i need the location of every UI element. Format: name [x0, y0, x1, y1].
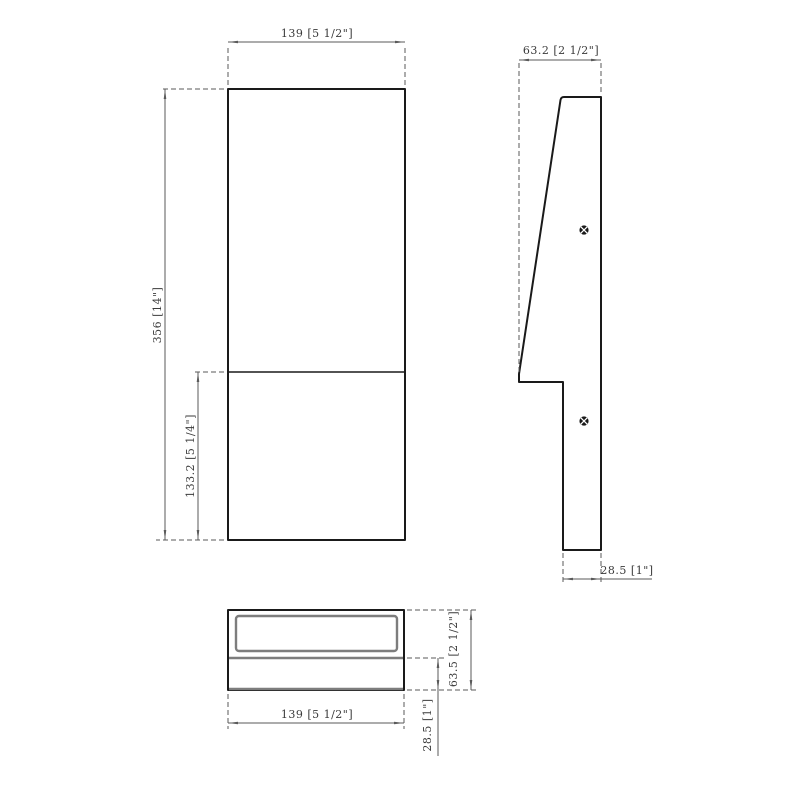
front-width-dimension: 139 [5 1/2"]: [228, 27, 405, 85]
side-depth-dim-label: 63.2 [2 1/2"]: [523, 44, 599, 57]
side-base-depth-dim-label: 28.5 [1"]: [600, 564, 653, 577]
side-base-depth-dimension: 28.5 [1"]: [563, 553, 654, 583]
screw-icon: [579, 416, 588, 425]
drawing-sheet: 139 [5 1/2"] 356 [14"] 133.2 [5 1/4"]: [0, 0, 800, 800]
bottom-width-dimension: 139 [5 1/2"]: [228, 694, 404, 729]
front-height-dim-label: 356 [14"]: [151, 287, 164, 344]
bottom-base-depth-dimension: 28.5 [1"]: [407, 658, 445, 756]
screw-icon: [579, 225, 588, 234]
bottom-base-depth-dim-label: 28.5 [1"]: [421, 698, 434, 751]
front-lower-height-dim-label: 133.2 [5 1/4"]: [184, 414, 197, 498]
side-view-outline: [519, 97, 601, 550]
side-view: 63.2 [2 1/2"] 28.5 [1"]: [519, 44, 654, 583]
side-depth-dimension: 63.2 [2 1/2"]: [519, 44, 601, 372]
bottom-view: 139 [5 1/2"] 63.5 [2 1/2"] 28.5 [1"]: [228, 610, 477, 756]
bottom-depth-dim-label: 63.5 [2 1/2"]: [447, 611, 460, 687]
bottom-depth-dimension: 63.5 [2 1/2"]: [407, 610, 477, 690]
technical-drawing-canvas: 139 [5 1/2"] 356 [14"] 133.2 [5 1/4"]: [0, 0, 800, 800]
front-lower-height-dimension: 133.2 [5 1/4"]: [184, 372, 224, 540]
front-view: 139 [5 1/2"] 356 [14"] 133.2 [5 1/4"]: [151, 27, 405, 540]
front-view-outline: [228, 89, 405, 540]
bottom-view-lens: [236, 616, 397, 651]
front-width-dim-label: 139 [5 1/2"]: [281, 27, 353, 40]
bottom-width-dim-label: 139 [5 1/2"]: [281, 708, 353, 721]
